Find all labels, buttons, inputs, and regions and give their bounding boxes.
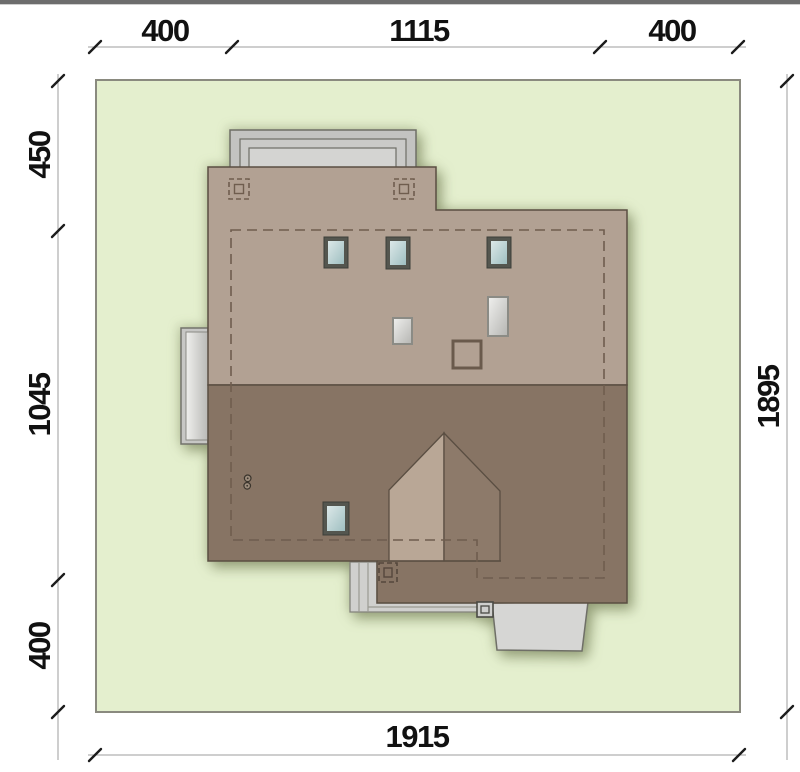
dim-label-left-bottom: 400 [22, 622, 57, 669]
site-plan-drawing: 400 1115 400 450 1045 400 1895 1915 [0, 0, 800, 772]
bay-window [181, 328, 208, 444]
dim-label-left-top: 450 [22, 131, 57, 178]
skylight-4 [323, 502, 349, 535]
top-bar [0, 0, 800, 4]
skylight-glass [390, 241, 406, 265]
skylight-1 [324, 237, 348, 268]
bay-window-roof [186, 332, 208, 440]
entrance-marker-outer [477, 602, 493, 617]
skylight-glass [328, 241, 344, 264]
vent-pipe-dot [246, 485, 248, 487]
dim-label-top-center: 1115 [389, 13, 450, 48]
dim-label-right-total: 1895 [751, 364, 786, 428]
site-plan-page: 400 1115 400 450 1045 400 1895 1915 [0, 0, 800, 772]
roof-window-small [393, 318, 412, 344]
vent-pipe-dot [247, 477, 249, 479]
dim-label-top-right: 400 [648, 13, 695, 48]
skylight-glass [491, 241, 507, 264]
skylight-glass [327, 506, 345, 531]
dim-label-left-middle: 1045 [22, 372, 57, 436]
entrance-steps [492, 602, 588, 651]
chimney-masonry [453, 341, 481, 368]
top-bar-edge [0, 4, 800, 5]
dim-label-bottom-total: 1915 [386, 719, 450, 754]
skylight-2 [386, 237, 410, 269]
entrance-marker [477, 602, 493, 617]
skylight-3 [487, 237, 511, 268]
roof-window-tall [488, 297, 508, 336]
dim-label-top-left: 400 [141, 13, 188, 48]
